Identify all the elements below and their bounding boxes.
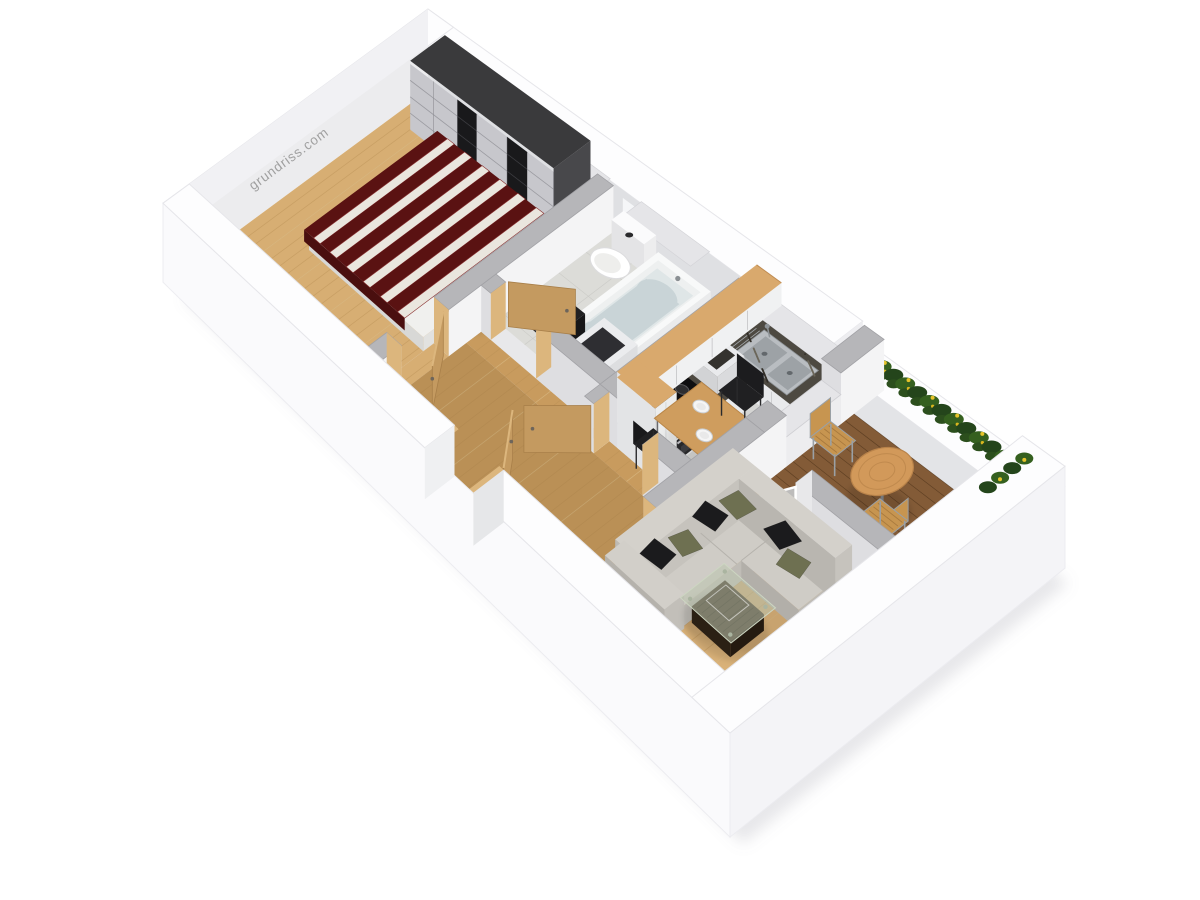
bathroom-door bbox=[508, 282, 575, 335]
floorplan-render: grundriss.com bbox=[0, 0, 1200, 900]
kitchen-door bbox=[524, 406, 591, 453]
scene-svg bbox=[0, 0, 1200, 900]
